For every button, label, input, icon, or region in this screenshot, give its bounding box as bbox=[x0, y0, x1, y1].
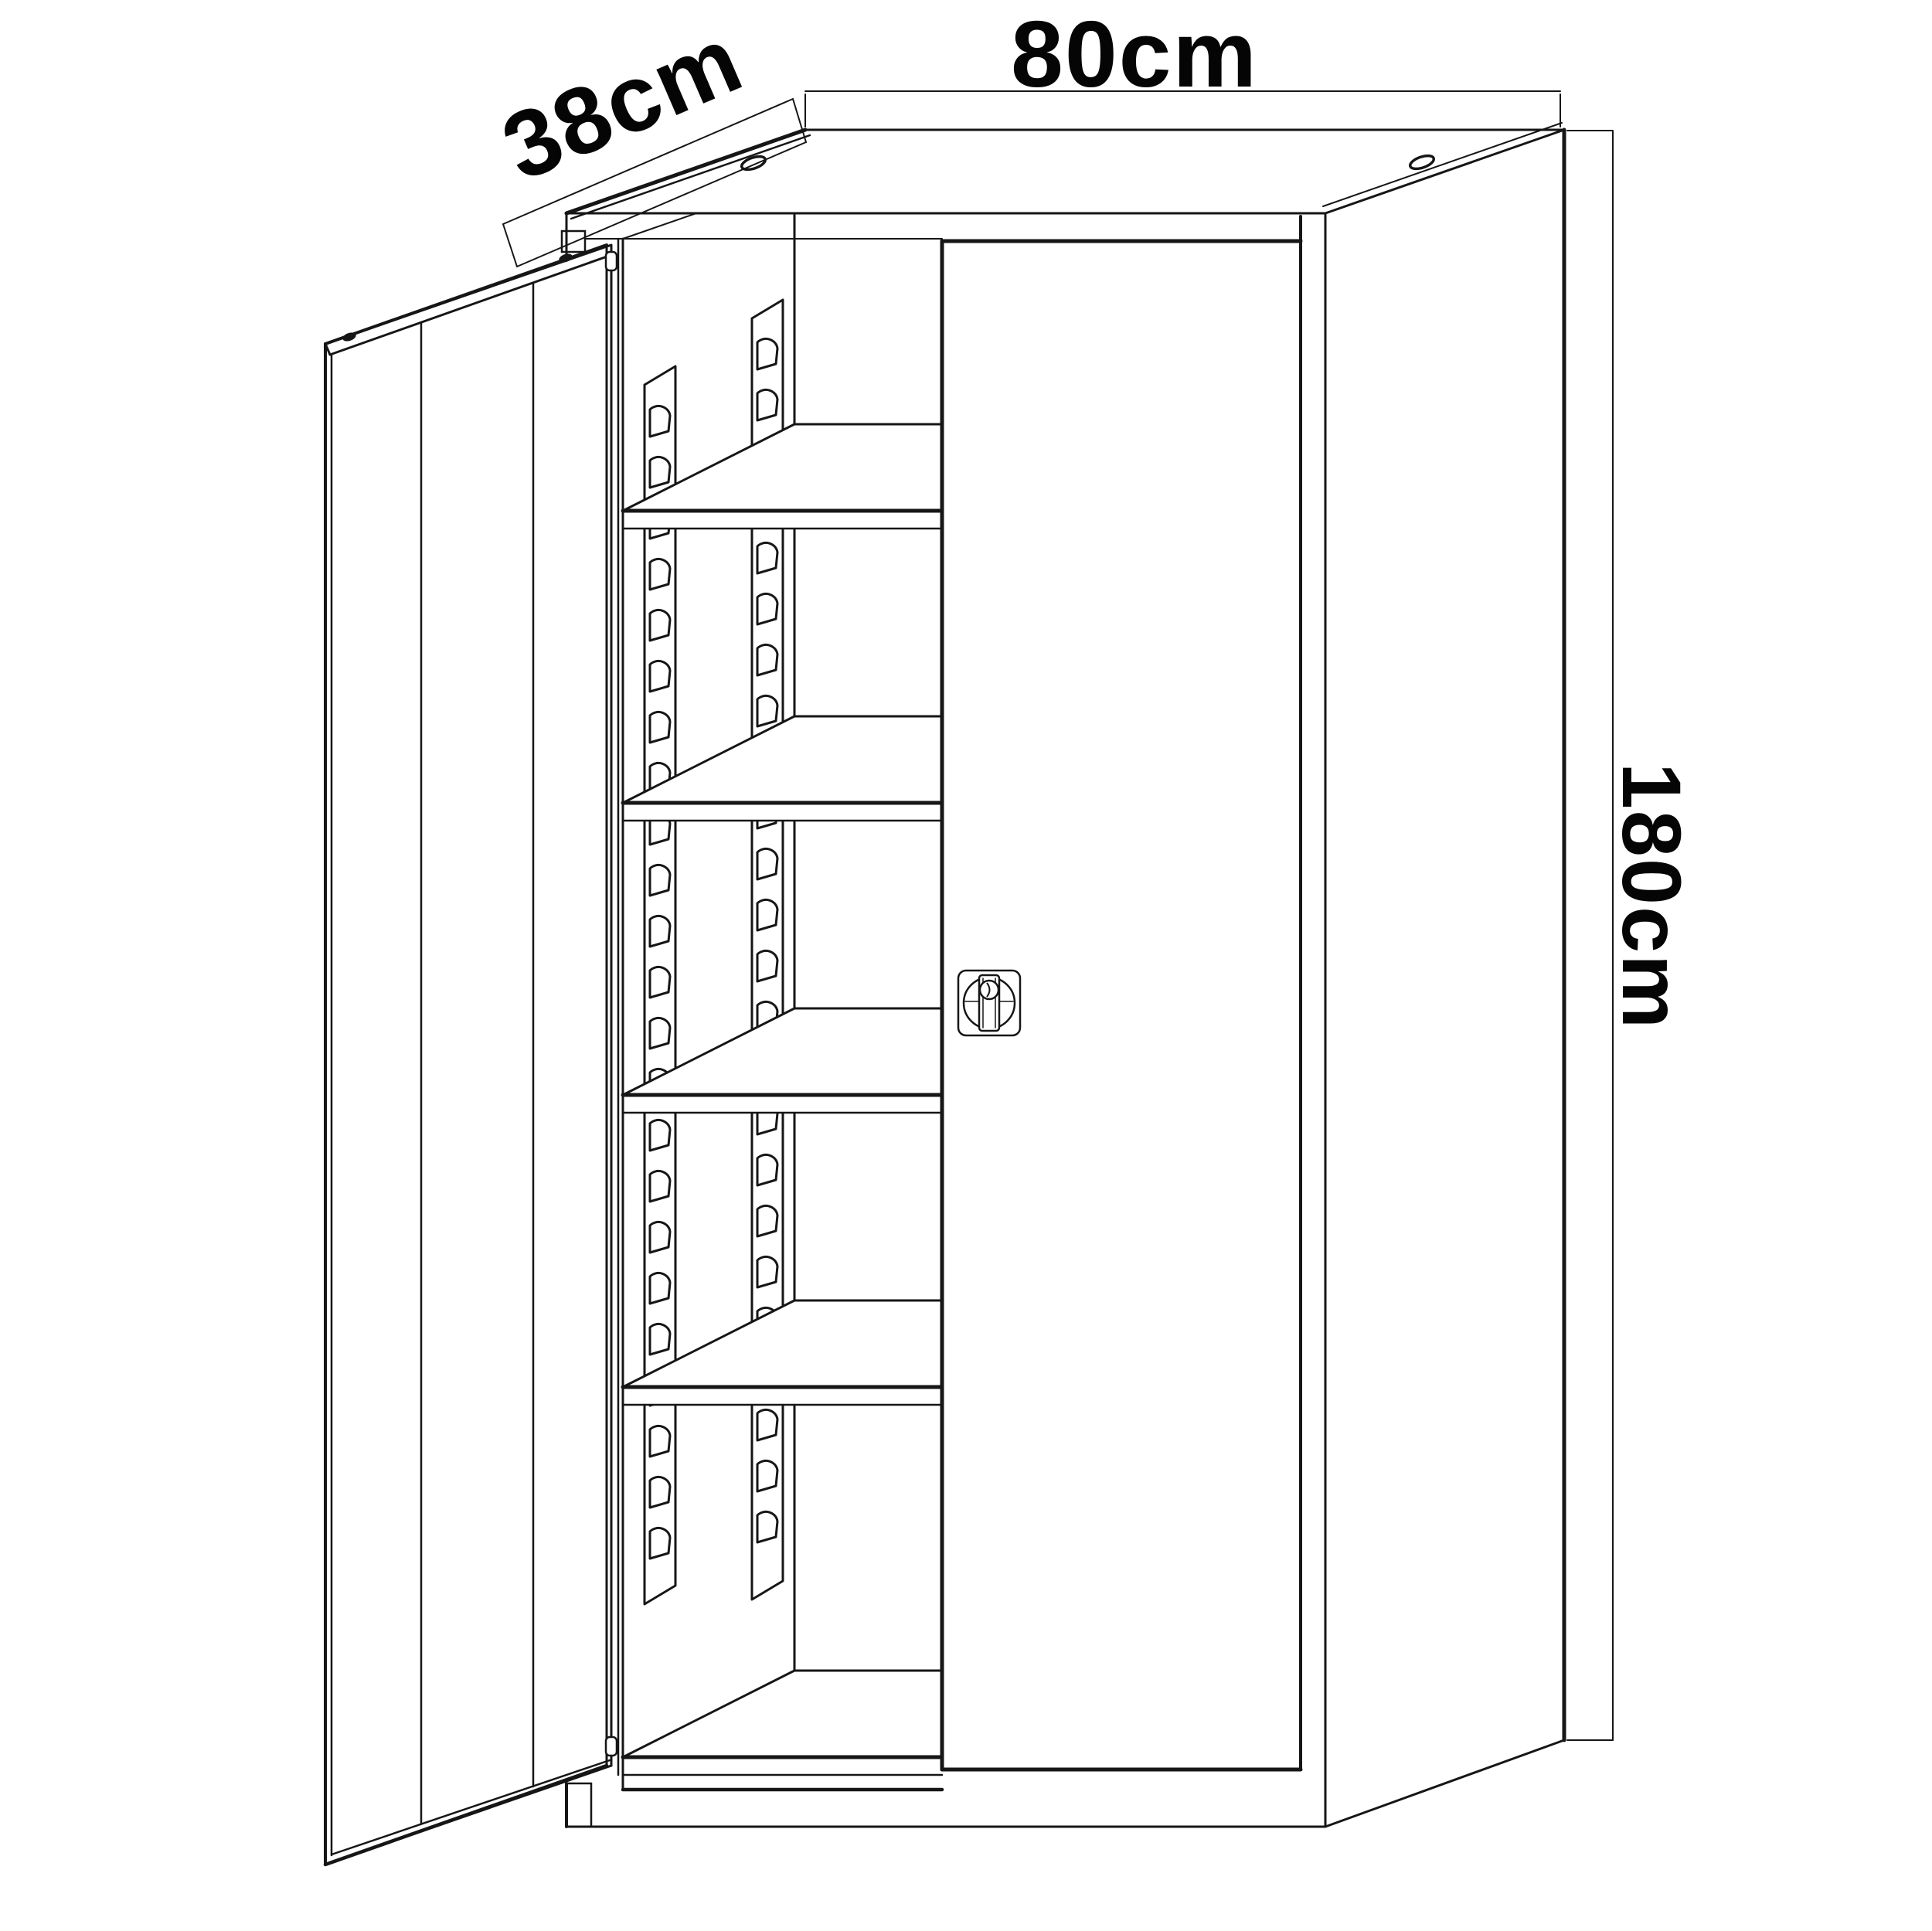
cabinet-technical-drawing: 80cm 38cm 180cm bbox=[0, 0, 1932, 1931]
cabinet-carcass bbox=[562, 123, 1564, 1827]
cabinet-linework bbox=[325, 91, 1613, 1865]
closed-right-door bbox=[942, 241, 1301, 1770]
open-left-door bbox=[325, 245, 617, 1865]
interior-floor bbox=[623, 1671, 942, 1790]
hinge-knuckle bbox=[606, 252, 617, 270]
height-dimension-label: 180cm bbox=[1605, 763, 1699, 1030]
technical-drawing-page: 80cm 38cm 180cm bbox=[0, 0, 1932, 1931]
width-dimension-label: 80cm bbox=[1011, 2, 1258, 107]
hinge-knuckle bbox=[606, 1737, 617, 1756]
cabinet-interior bbox=[623, 179, 942, 1790]
top-face bbox=[566, 123, 1564, 219]
lock-icon bbox=[958, 971, 1020, 1035]
